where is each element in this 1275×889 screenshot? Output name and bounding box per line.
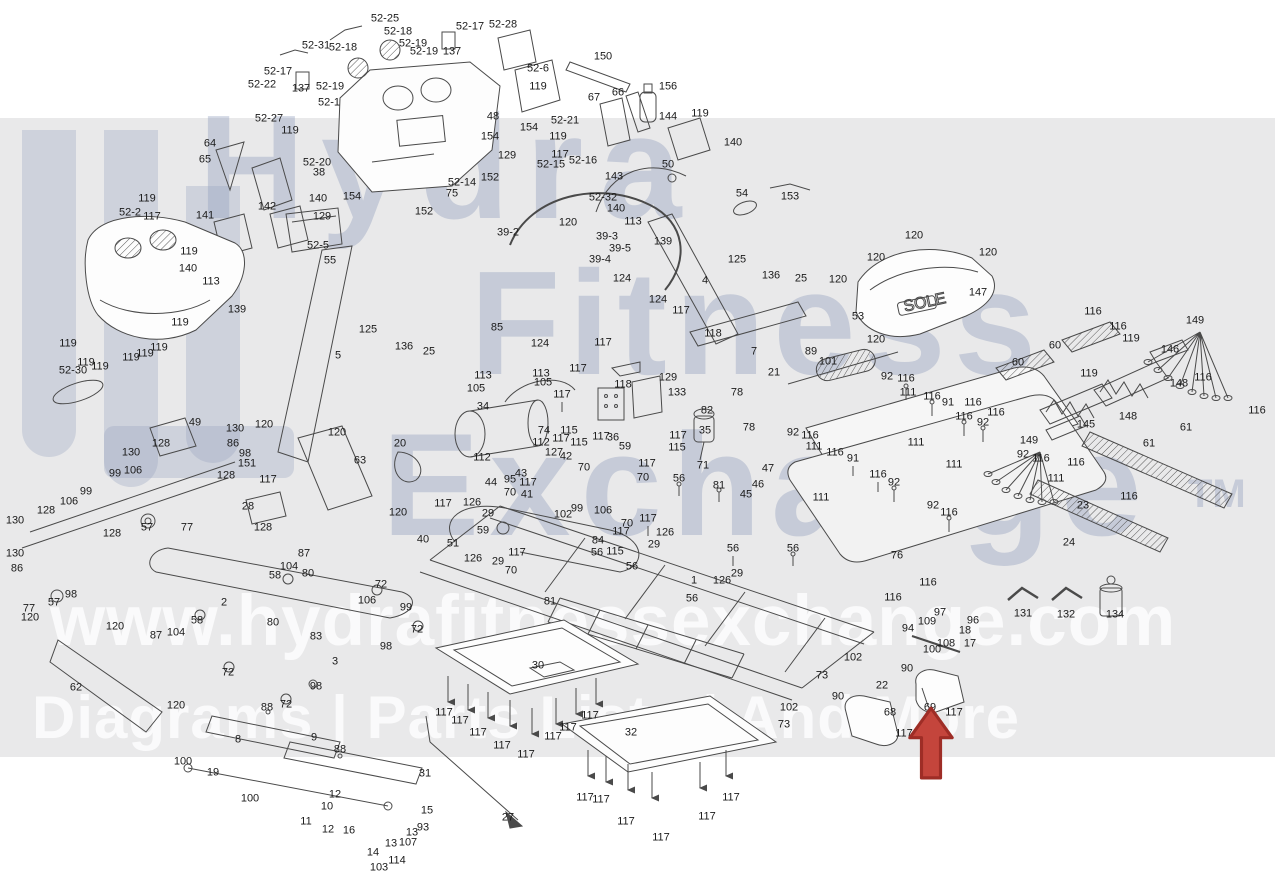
part-label-117: 117 bbox=[469, 728, 487, 739]
part-label-106: 106 bbox=[358, 596, 376, 607]
part-label-105: 105 bbox=[467, 384, 485, 395]
part-label-120: 120 bbox=[979, 248, 997, 259]
part-label-83: 83 bbox=[310, 632, 322, 643]
part-label-117: 117 bbox=[451, 716, 469, 727]
part-label-75: 75 bbox=[446, 189, 458, 200]
part-label-117: 117 bbox=[722, 793, 740, 804]
part-label-56: 56 bbox=[787, 544, 799, 555]
part-label-66: 66 bbox=[612, 88, 624, 99]
part-label-128: 128 bbox=[152, 439, 170, 450]
part-label-94: 94 bbox=[902, 624, 914, 635]
part-label-99: 99 bbox=[80, 487, 92, 498]
part-label-144: 144 bbox=[659, 112, 677, 123]
part-label-23: 23 bbox=[1077, 501, 1089, 512]
part-label-120: 120 bbox=[867, 253, 885, 264]
part-label-117: 117 bbox=[434, 499, 452, 510]
part-label-117: 117 bbox=[698, 812, 716, 823]
part-label-72: 72 bbox=[280, 700, 292, 711]
part-label-98: 98 bbox=[310, 682, 322, 693]
part-label-119: 119 bbox=[59, 339, 77, 350]
part-label-52-19: 52-19 bbox=[316, 82, 344, 93]
part-label-117: 117 bbox=[581, 711, 599, 722]
part-label-78: 78 bbox=[731, 388, 743, 399]
part-label-116: 116 bbox=[1248, 406, 1266, 417]
part-label-143: 143 bbox=[605, 172, 623, 183]
part-label-13: 13 bbox=[385, 839, 397, 850]
part-label-129: 129 bbox=[498, 151, 516, 162]
part-label-25: 25 bbox=[795, 274, 807, 285]
part-label-116: 116 bbox=[869, 470, 887, 481]
part-label-59: 59 bbox=[619, 442, 631, 453]
part-label-150: 150 bbox=[594, 52, 612, 63]
part-label-52-19: 52-19 bbox=[410, 47, 438, 58]
part-label-131: 131 bbox=[1014, 609, 1032, 620]
part-label-126: 126 bbox=[656, 528, 674, 539]
part-label-126: 126 bbox=[713, 576, 731, 587]
part-label-117: 117 bbox=[519, 478, 537, 489]
part-label-81: 81 bbox=[713, 481, 725, 492]
part-label-19: 19 bbox=[207, 768, 219, 779]
part-label-104: 104 bbox=[167, 628, 185, 639]
part-label-92: 92 bbox=[1017, 450, 1029, 461]
part-label-145: 145 bbox=[1077, 420, 1095, 431]
part-label-18: 18 bbox=[959, 626, 971, 637]
part-label-47: 47 bbox=[762, 464, 774, 475]
part-label-119: 119 bbox=[150, 343, 168, 354]
part-label-116: 116 bbox=[1032, 454, 1050, 465]
part-label-82: 82 bbox=[701, 406, 713, 417]
part-label-91: 91 bbox=[847, 454, 859, 465]
part-label-62: 62 bbox=[70, 683, 82, 694]
part-label-111: 111 bbox=[908, 438, 925, 449]
part-label-73: 73 bbox=[816, 671, 828, 682]
part-label-104: 104 bbox=[280, 562, 298, 573]
part-label-9: 9 bbox=[311, 733, 317, 744]
part-label-117: 117 bbox=[594, 338, 612, 349]
part-label-92: 92 bbox=[888, 478, 900, 489]
part-label-70: 70 bbox=[637, 473, 649, 484]
part-label-24: 24 bbox=[1063, 538, 1075, 549]
part-label-53: 53 bbox=[852, 312, 864, 323]
part-label-87: 87 bbox=[298, 549, 310, 560]
part-label-77: 77 bbox=[181, 523, 193, 534]
part-label-124: 124 bbox=[613, 274, 631, 285]
part-label-140: 140 bbox=[179, 264, 197, 275]
part-label-60: 60 bbox=[1012, 358, 1024, 369]
part-label-120: 120 bbox=[328, 428, 346, 439]
part-label-116: 116 bbox=[940, 508, 958, 519]
part-label-128: 128 bbox=[217, 471, 235, 482]
part-label-149: 149 bbox=[1020, 436, 1038, 447]
part-label-134: 134 bbox=[1106, 610, 1124, 621]
part-label-39-2: 39-2 bbox=[497, 228, 519, 239]
part-label-100: 100 bbox=[241, 794, 259, 805]
part-label-67: 67 bbox=[588, 93, 600, 104]
part-label-117: 117 bbox=[672, 306, 690, 317]
part-label-52-1: 52-1 bbox=[318, 98, 340, 109]
part-label-153: 153 bbox=[781, 192, 799, 203]
part-label-119: 119 bbox=[691, 109, 709, 120]
part-label-125: 125 bbox=[359, 325, 377, 336]
part-label-52-18: 52-18 bbox=[384, 27, 412, 38]
part-label-58: 58 bbox=[269, 571, 281, 582]
part-label-65: 65 bbox=[199, 155, 211, 166]
part-label-40: 40 bbox=[417, 535, 429, 546]
part-label-4: 4 bbox=[702, 276, 708, 287]
part-label-56: 56 bbox=[727, 544, 739, 555]
part-label-84: 84 bbox=[592, 536, 604, 547]
treadmill-parts-diagram: Hydra Fitness Exchange TM www.hydrafitne… bbox=[0, 0, 1275, 889]
part-label-140: 140 bbox=[724, 138, 742, 149]
part-label-61: 61 bbox=[1180, 423, 1192, 434]
part-label-56: 56 bbox=[591, 548, 603, 559]
part-label-29: 29 bbox=[492, 557, 504, 568]
part-label-12: 12 bbox=[322, 825, 334, 836]
part-label-99: 99 bbox=[109, 469, 121, 480]
part-label-117: 117 bbox=[638, 459, 656, 470]
part-label-137: 137 bbox=[443, 47, 461, 58]
part-label-107: 107 bbox=[399, 838, 417, 849]
part-label-116: 116 bbox=[884, 593, 902, 604]
part-label-70: 70 bbox=[504, 488, 516, 499]
part-label-126: 126 bbox=[464, 554, 482, 565]
part-label-120: 120 bbox=[389, 508, 407, 519]
part-label-115: 115 bbox=[606, 547, 624, 558]
part-label-129: 129 bbox=[659, 373, 677, 384]
part-label-90: 90 bbox=[901, 664, 913, 675]
part-label-101: 101 bbox=[819, 357, 837, 368]
part-label-118: 118 bbox=[704, 329, 722, 340]
part-label-111: 111 bbox=[1048, 474, 1065, 485]
part-label-89: 89 bbox=[805, 347, 817, 358]
part-label-41: 41 bbox=[521, 490, 533, 501]
part-label-151: 151 bbox=[238, 459, 256, 470]
part-label-2: 2 bbox=[221, 598, 227, 609]
part-label-60: 60 bbox=[1049, 341, 1061, 352]
part-label-100: 100 bbox=[174, 757, 192, 768]
part-label-35: 35 bbox=[699, 426, 711, 437]
part-label-120: 120 bbox=[106, 622, 124, 633]
part-label-86: 86 bbox=[227, 439, 239, 450]
part-label-68: 68 bbox=[884, 708, 896, 719]
part-label-136: 136 bbox=[395, 342, 413, 353]
part-label-87: 87 bbox=[150, 631, 162, 642]
part-label-116: 116 bbox=[964, 398, 982, 409]
part-label-57: 57 bbox=[48, 598, 60, 609]
part-label-38: 38 bbox=[313, 168, 325, 179]
part-label-73: 73 bbox=[778, 720, 790, 731]
part-label-117: 117 bbox=[559, 723, 577, 734]
part-label-147: 147 bbox=[969, 288, 987, 299]
part-label-52-17: 52-17 bbox=[456, 22, 484, 33]
part-label-154: 154 bbox=[343, 192, 361, 203]
part-label-8: 8 bbox=[235, 735, 241, 746]
part-label-39-5: 39-5 bbox=[609, 244, 631, 255]
part-label-140: 140 bbox=[309, 194, 327, 205]
part-label-81: 81 bbox=[544, 597, 556, 608]
part-label-30: 30 bbox=[532, 661, 544, 672]
part-label-50: 50 bbox=[662, 160, 674, 171]
part-label-29: 29 bbox=[648, 540, 660, 551]
part-label-15: 15 bbox=[421, 806, 433, 817]
part-label-128: 128 bbox=[37, 506, 55, 517]
part-label-34: 34 bbox=[477, 402, 489, 413]
part-label-128: 128 bbox=[254, 523, 272, 534]
part-label-52-27: 52-27 bbox=[255, 114, 283, 125]
part-label-117: 117 bbox=[552, 434, 570, 445]
part-label-20: 20 bbox=[394, 439, 406, 450]
part-label-76: 76 bbox=[891, 551, 903, 562]
part-label-130: 130 bbox=[122, 448, 140, 459]
part-label-14: 14 bbox=[367, 848, 379, 859]
part-label-103: 103 bbox=[370, 863, 388, 874]
part-label-105: 105 bbox=[534, 378, 552, 389]
part-label-117: 117 bbox=[652, 833, 670, 844]
part-label-117: 117 bbox=[259, 475, 277, 486]
part-label-27: 27 bbox=[502, 813, 514, 824]
part-label-111: 111 bbox=[806, 442, 823, 453]
part-label-48: 48 bbox=[487, 112, 499, 123]
part-label-117: 117 bbox=[508, 548, 526, 559]
part-label-86: 86 bbox=[11, 564, 23, 575]
part-label-64: 64 bbox=[204, 139, 216, 150]
part-label-52-15: 52-15 bbox=[537, 160, 565, 171]
part-label-52-31: 52-31 bbox=[302, 41, 330, 52]
part-labels-layer: 52-2552-1852-1752-2852-3152-1852-1952-19… bbox=[0, 0, 1275, 889]
part-label-116: 116 bbox=[1194, 373, 1212, 384]
part-label-136: 136 bbox=[762, 271, 780, 282]
part-label-32: 32 bbox=[625, 728, 637, 739]
part-label-130: 130 bbox=[6, 516, 24, 527]
part-label-80: 80 bbox=[302, 569, 314, 580]
part-label-119: 119 bbox=[171, 318, 189, 329]
part-label-119: 119 bbox=[91, 362, 109, 373]
part-label-117: 117 bbox=[517, 750, 535, 761]
part-label-119: 119 bbox=[549, 132, 567, 143]
part-label-52-17: 52-17 bbox=[264, 67, 292, 78]
part-label-52-16: 52-16 bbox=[569, 156, 597, 167]
part-label-56: 56 bbox=[626, 562, 638, 573]
part-label-116: 116 bbox=[955, 412, 973, 423]
part-label-92: 92 bbox=[787, 428, 799, 439]
part-label-25: 25 bbox=[423, 347, 435, 358]
part-label-52-18: 52-18 bbox=[329, 43, 357, 54]
part-label-99: 99 bbox=[571, 504, 583, 515]
part-label-120: 120 bbox=[905, 231, 923, 242]
part-label-116: 116 bbox=[826, 448, 844, 459]
part-label-80: 80 bbox=[267, 618, 279, 629]
part-label-113: 113 bbox=[474, 371, 492, 382]
part-label-118: 118 bbox=[614, 380, 632, 391]
part-label-119: 119 bbox=[180, 247, 198, 258]
part-label-99: 99 bbox=[400, 603, 412, 614]
part-label-92: 92 bbox=[881, 372, 893, 383]
part-label-113: 113 bbox=[202, 277, 220, 288]
part-label-120: 120 bbox=[255, 420, 273, 431]
part-label-106: 106 bbox=[60, 497, 78, 508]
part-label-116: 116 bbox=[1120, 492, 1138, 503]
part-label-3: 3 bbox=[332, 657, 338, 668]
part-label-93: 93 bbox=[417, 823, 429, 834]
part-label-36: 36 bbox=[607, 433, 619, 444]
part-label-117: 117 bbox=[612, 527, 630, 538]
part-label-72: 72 bbox=[375, 580, 387, 591]
part-69-highlight-arrow-icon bbox=[907, 706, 955, 780]
part-label-156: 156 bbox=[659, 82, 677, 93]
part-label-154: 154 bbox=[520, 123, 538, 134]
part-label-52-6: 52-6 bbox=[527, 64, 549, 75]
part-label-140: 140 bbox=[607, 204, 625, 215]
part-label-52-2: 52-2 bbox=[119, 208, 141, 219]
part-label-117: 117 bbox=[576, 793, 594, 804]
part-label-52-28: 52-28 bbox=[489, 20, 517, 31]
part-label-56: 56 bbox=[686, 594, 698, 605]
part-label-52-5: 52-5 bbox=[307, 241, 329, 252]
part-label-120: 120 bbox=[21, 613, 39, 624]
part-label-139: 139 bbox=[654, 237, 672, 248]
part-label-98: 98 bbox=[65, 590, 77, 601]
part-label-116: 116 bbox=[1084, 307, 1102, 318]
part-label-90: 90 bbox=[832, 692, 844, 703]
part-label-148: 148 bbox=[1170, 379, 1188, 390]
part-label-117: 117 bbox=[553, 390, 571, 401]
part-label-92: 92 bbox=[977, 418, 989, 429]
part-label-31: 31 bbox=[419, 769, 431, 780]
part-label-28: 28 bbox=[242, 502, 254, 513]
part-label-152: 152 bbox=[481, 173, 499, 184]
part-label-102: 102 bbox=[554, 510, 572, 521]
part-label-129: 129 bbox=[313, 212, 331, 223]
part-label-17: 17 bbox=[964, 639, 976, 650]
part-label-154: 154 bbox=[481, 132, 499, 143]
part-label-52-21: 52-21 bbox=[551, 116, 579, 127]
part-label-116: 116 bbox=[897, 374, 915, 385]
part-label-92: 92 bbox=[927, 501, 939, 512]
part-label-55: 55 bbox=[324, 256, 336, 267]
part-label-146: 146 bbox=[1161, 345, 1179, 356]
part-label-137: 137 bbox=[292, 84, 310, 95]
part-label-132: 132 bbox=[1057, 610, 1075, 621]
part-label-111: 111 bbox=[813, 493, 830, 504]
part-label-11: 11 bbox=[300, 817, 311, 828]
part-label-117: 117 bbox=[569, 364, 587, 375]
part-label-152: 152 bbox=[415, 207, 433, 218]
part-label-71: 71 bbox=[697, 461, 709, 472]
part-label-54: 54 bbox=[736, 189, 748, 200]
part-label-102: 102 bbox=[844, 653, 862, 664]
part-label-98: 98 bbox=[380, 642, 392, 653]
part-label-120: 120 bbox=[829, 275, 847, 286]
part-label-58: 58 bbox=[191, 616, 203, 627]
part-label-148: 148 bbox=[1119, 412, 1137, 423]
part-label-56: 56 bbox=[673, 474, 685, 485]
part-label-142: 142 bbox=[258, 202, 276, 213]
part-label-44: 44 bbox=[485, 478, 497, 489]
part-label-29: 29 bbox=[731, 569, 743, 580]
part-label-117: 117 bbox=[669, 431, 687, 442]
part-label-115: 115 bbox=[668, 443, 686, 454]
part-label-130: 130 bbox=[226, 424, 244, 435]
part-label-10: 10 bbox=[321, 802, 333, 813]
part-label-72: 72 bbox=[222, 668, 234, 679]
part-label-16: 16 bbox=[343, 826, 355, 837]
part-label-115: 115 bbox=[570, 438, 588, 449]
part-label-39-4: 39-4 bbox=[589, 255, 611, 266]
part-label-102: 102 bbox=[780, 703, 798, 714]
part-label-117: 117 bbox=[639, 514, 657, 525]
part-label-119: 119 bbox=[1122, 334, 1140, 345]
part-label-74: 74 bbox=[538, 426, 550, 437]
part-label-5: 5 bbox=[335, 351, 341, 362]
part-label-120: 120 bbox=[867, 335, 885, 346]
part-label-52-25: 52-25 bbox=[371, 14, 399, 25]
part-label-126: 126 bbox=[463, 498, 481, 509]
part-label-70: 70 bbox=[505, 566, 517, 577]
part-label-114: 114 bbox=[388, 856, 406, 867]
part-label-52-22: 52-22 bbox=[248, 80, 276, 91]
part-label-116: 116 bbox=[1067, 458, 1085, 469]
part-label-63: 63 bbox=[354, 456, 366, 467]
part-label-116: 116 bbox=[1109, 322, 1127, 333]
part-label-85: 85 bbox=[491, 323, 503, 334]
part-label-45: 45 bbox=[740, 490, 752, 501]
part-label-116: 116 bbox=[923, 392, 941, 403]
part-label-116: 116 bbox=[987, 408, 1005, 419]
part-label-61: 61 bbox=[1143, 439, 1155, 450]
part-label-106: 106 bbox=[594, 506, 612, 517]
part-label-111: 111 bbox=[900, 388, 917, 399]
part-label-111: 111 bbox=[946, 460, 963, 471]
part-label-133: 133 bbox=[668, 388, 686, 399]
part-label-106: 106 bbox=[124, 466, 142, 477]
part-label-29: 29 bbox=[482, 509, 494, 520]
part-label-109: 109 bbox=[918, 617, 936, 628]
part-label-124: 124 bbox=[649, 295, 667, 306]
part-label-100: 100 bbox=[923, 645, 941, 656]
part-label-120: 120 bbox=[559, 218, 577, 229]
part-label-46: 46 bbox=[752, 480, 764, 491]
part-label-119: 119 bbox=[281, 126, 299, 137]
part-label-21: 21 bbox=[768, 368, 780, 379]
part-label-139: 139 bbox=[228, 305, 246, 316]
part-label-120: 120 bbox=[167, 701, 185, 712]
part-label-70: 70 bbox=[578, 463, 590, 474]
part-label-128: 128 bbox=[103, 529, 121, 540]
part-label-51: 51 bbox=[447, 539, 459, 550]
part-label-117: 117 bbox=[592, 795, 610, 806]
part-label-113: 113 bbox=[624, 217, 642, 228]
part-label-39-3: 39-3 bbox=[596, 232, 618, 243]
part-label-119: 119 bbox=[529, 82, 547, 93]
part-label-117: 117 bbox=[435, 708, 453, 719]
part-label-88: 88 bbox=[334, 745, 346, 756]
part-label-7: 7 bbox=[751, 347, 757, 358]
part-label-117: 117 bbox=[617, 817, 635, 828]
part-label-22: 22 bbox=[876, 681, 888, 692]
part-label-1: 1 bbox=[691, 576, 697, 587]
part-label-112: 112 bbox=[473, 453, 491, 464]
part-label-42: 42 bbox=[560, 452, 572, 463]
part-label-88: 88 bbox=[261, 703, 273, 714]
part-label-72: 72 bbox=[411, 625, 423, 636]
part-label-59: 59 bbox=[477, 526, 489, 537]
part-label-130: 130 bbox=[6, 549, 24, 560]
part-label-91: 91 bbox=[942, 398, 954, 409]
part-label-49: 49 bbox=[189, 418, 201, 429]
part-label-117: 117 bbox=[143, 212, 161, 223]
part-label-117: 117 bbox=[493, 741, 511, 752]
part-label-57: 57 bbox=[141, 523, 153, 534]
